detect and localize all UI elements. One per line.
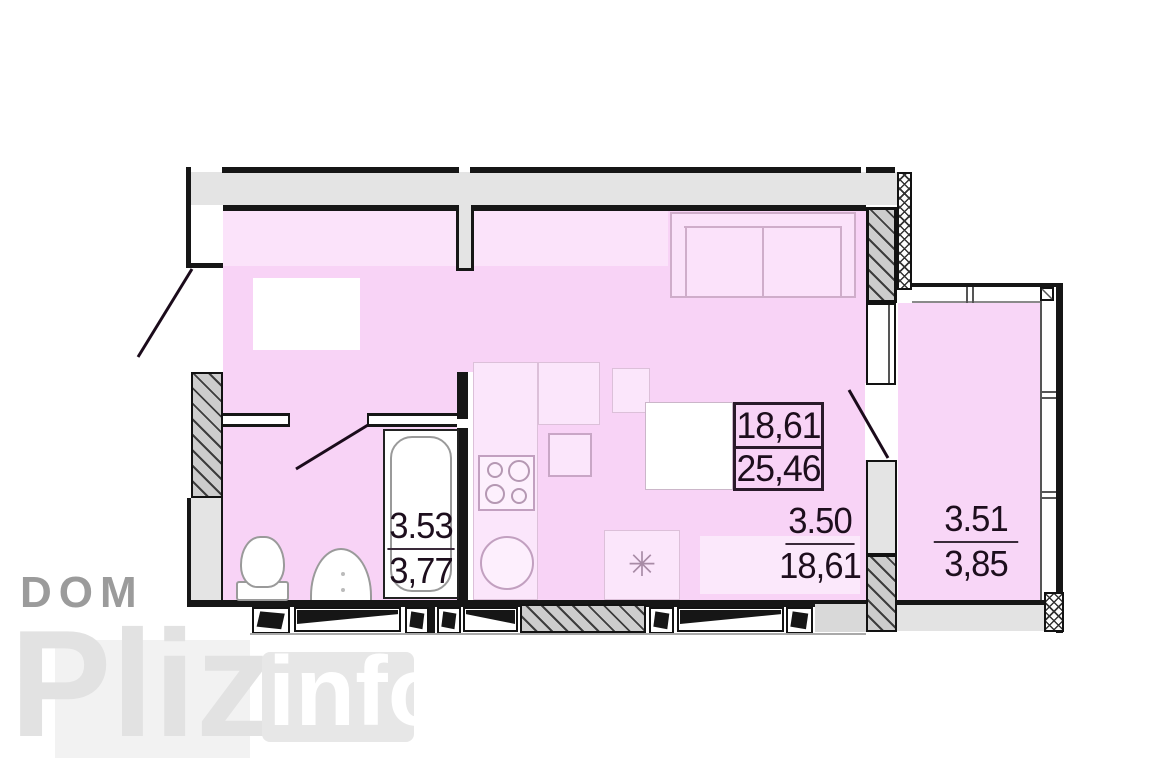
main-room-number: 3.50 xyxy=(772,502,868,541)
window-balcony-wall-frame-line xyxy=(888,305,890,383)
main-room-area: 18,61 xyxy=(772,547,868,586)
balcony-right-glazing xyxy=(1040,301,1056,603)
main-room-floor-light-band xyxy=(223,211,668,266)
fridge-icon: ✳ xyxy=(605,531,679,599)
wall-right-hatched-top xyxy=(866,207,897,303)
kitchen-counter-top xyxy=(538,362,600,425)
wall-top-outer-line-1 xyxy=(222,167,459,173)
kitchen-sink xyxy=(480,536,534,590)
wall-left-cap xyxy=(191,263,223,268)
balcony-label: 3.51 3,85 xyxy=(928,500,1024,584)
balcony-number: 3.51 xyxy=(928,500,1024,539)
balcony-right-mullion-2a xyxy=(1040,491,1056,493)
sofa xyxy=(670,212,856,298)
balcony-top-glazing xyxy=(912,287,1040,303)
stove xyxy=(478,455,535,511)
window-block xyxy=(649,607,674,634)
wall-stub-bath-left xyxy=(223,413,290,427)
balcony-right-outer-wall xyxy=(1056,283,1063,633)
wall-right-gray-mid xyxy=(866,460,897,555)
window-sash-glyph xyxy=(409,611,425,630)
window-balcony-wall xyxy=(866,303,896,385)
window-block xyxy=(437,607,461,634)
bottom-strip-baseline xyxy=(250,633,866,635)
wall-left-lower xyxy=(191,498,223,600)
wall-bottom-hatched xyxy=(520,604,646,633)
window-sill xyxy=(677,607,784,632)
window-sash-glyph xyxy=(256,611,286,630)
sofa-seat-divider xyxy=(762,226,764,296)
window-sash-glyph xyxy=(653,611,670,630)
apartment-summary-box: 18,61 25,46 xyxy=(733,402,824,491)
watermark-pliz: Pliz xyxy=(10,608,272,760)
wall-stub-bath-right xyxy=(367,413,459,427)
kitchen-cabinet-mid xyxy=(548,433,592,477)
wall-partition-gap xyxy=(457,419,468,428)
sofa-arm-left xyxy=(685,226,687,296)
balcony-right-mullion-2b xyxy=(1040,497,1056,499)
balcony-top-mullion-1 xyxy=(966,287,968,303)
sink-drain-dot xyxy=(341,588,345,592)
window-sill xyxy=(294,607,401,632)
wall-below-partition xyxy=(429,604,435,634)
stove-burner xyxy=(511,488,527,504)
balcony-right-mullion-1a xyxy=(1040,391,1056,393)
table xyxy=(645,402,733,490)
wall-left-outer-line xyxy=(186,167,191,268)
wall-top-outer-line-3 xyxy=(866,167,895,173)
balcony-area: 3,85 xyxy=(928,545,1024,584)
window-block xyxy=(252,607,290,634)
bathroom-label: 3.53 3,77 xyxy=(381,507,462,591)
window-shade-glyph xyxy=(297,610,398,625)
summary-living-area-value: 18,61 xyxy=(738,405,820,446)
window-sash-glyph xyxy=(441,611,457,630)
balcony-door-threshold xyxy=(865,383,898,460)
window-shade-glyph xyxy=(680,610,781,625)
entrance-door-swing xyxy=(138,269,192,357)
wall-top-inner-line xyxy=(223,205,866,211)
summary-total-area-value: 25,46 xyxy=(738,449,820,489)
stove-burner xyxy=(485,484,505,504)
floor-plan: DOM Pliz info xyxy=(0,0,1150,768)
bathroom-number: 3.53 xyxy=(381,507,462,546)
stove-burner xyxy=(487,462,503,478)
toilet-bowl xyxy=(240,536,285,588)
summary-living-area: 18,61 xyxy=(736,405,821,449)
summary-total-area: 25,46 xyxy=(736,449,821,489)
window-block xyxy=(405,607,429,634)
balcony-bottom-vent-block xyxy=(1044,592,1064,632)
vent-column xyxy=(897,172,912,290)
fridge: ✳ xyxy=(604,530,680,600)
balcony-right-mullion-1b xyxy=(1040,397,1056,399)
wall-left-hatched xyxy=(191,372,223,498)
sink-drain-dot xyxy=(341,572,345,576)
window-sash-glyph xyxy=(790,611,809,630)
wardrobe xyxy=(253,278,360,350)
wall-right-hatched-bottom xyxy=(866,555,897,632)
wall-top-outer-line-2 xyxy=(470,167,861,173)
window-shade-glyph xyxy=(466,610,515,625)
wall-stub-hall xyxy=(456,205,474,271)
wall-top xyxy=(191,172,910,205)
balcony-bottom-band xyxy=(897,605,1046,631)
bathroom-area: 3,77 xyxy=(381,552,462,591)
balcony-corner-box xyxy=(1040,287,1054,301)
watermark-info: info xyxy=(268,642,448,740)
stove-burner xyxy=(508,460,530,482)
main-room-label: 3.50 18,61 xyxy=(772,502,868,586)
wall-bottom-gray xyxy=(815,604,866,632)
sofa-arm-right xyxy=(840,226,842,296)
balcony-top-mullion-2 xyxy=(972,287,974,303)
window-block xyxy=(786,607,813,634)
window-sill xyxy=(463,607,518,632)
